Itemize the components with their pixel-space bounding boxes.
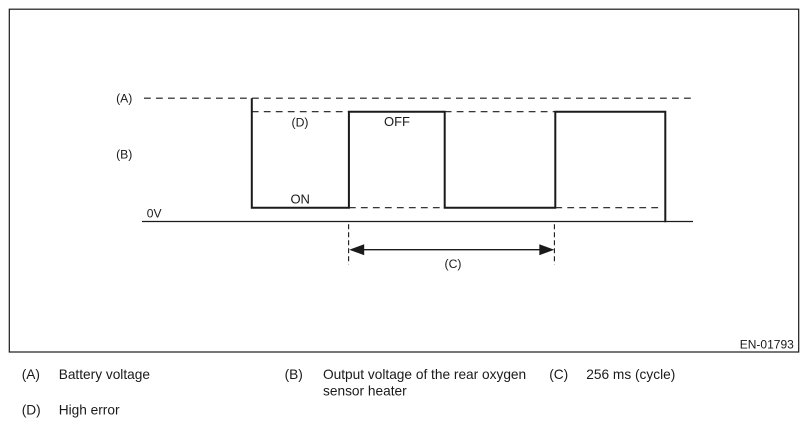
svg-text:(C): (C) — [549, 367, 568, 382]
svg-text:OFF: OFF — [384, 114, 410, 129]
svg-text:(A): (A) — [116, 92, 132, 106]
svg-text:0V: 0V — [147, 207, 163, 221]
svg-text:(A): (A) — [22, 367, 40, 382]
svg-text:ON: ON — [290, 191, 310, 206]
svg-text:(D): (D) — [22, 403, 41, 418]
svg-text:(B): (B) — [285, 367, 303, 382]
svg-text:High error: High error — [59, 403, 120, 418]
svg-text:(C): (C) — [445, 257, 462, 271]
svg-text:256 ms (cycle): 256 ms (cycle) — [586, 367, 675, 382]
svg-text:Output voltage of the rear oxy: Output voltage of the rear oxygen — [323, 367, 526, 382]
svg-text:Battery voltage: Battery voltage — [59, 367, 150, 382]
svg-text:(B): (B) — [116, 148, 132, 162]
svg-text:(D): (D) — [292, 115, 309, 129]
svg-text:sensor heater: sensor heater — [323, 384, 407, 399]
svg-text:EN-01793: EN-01793 — [740, 338, 794, 352]
